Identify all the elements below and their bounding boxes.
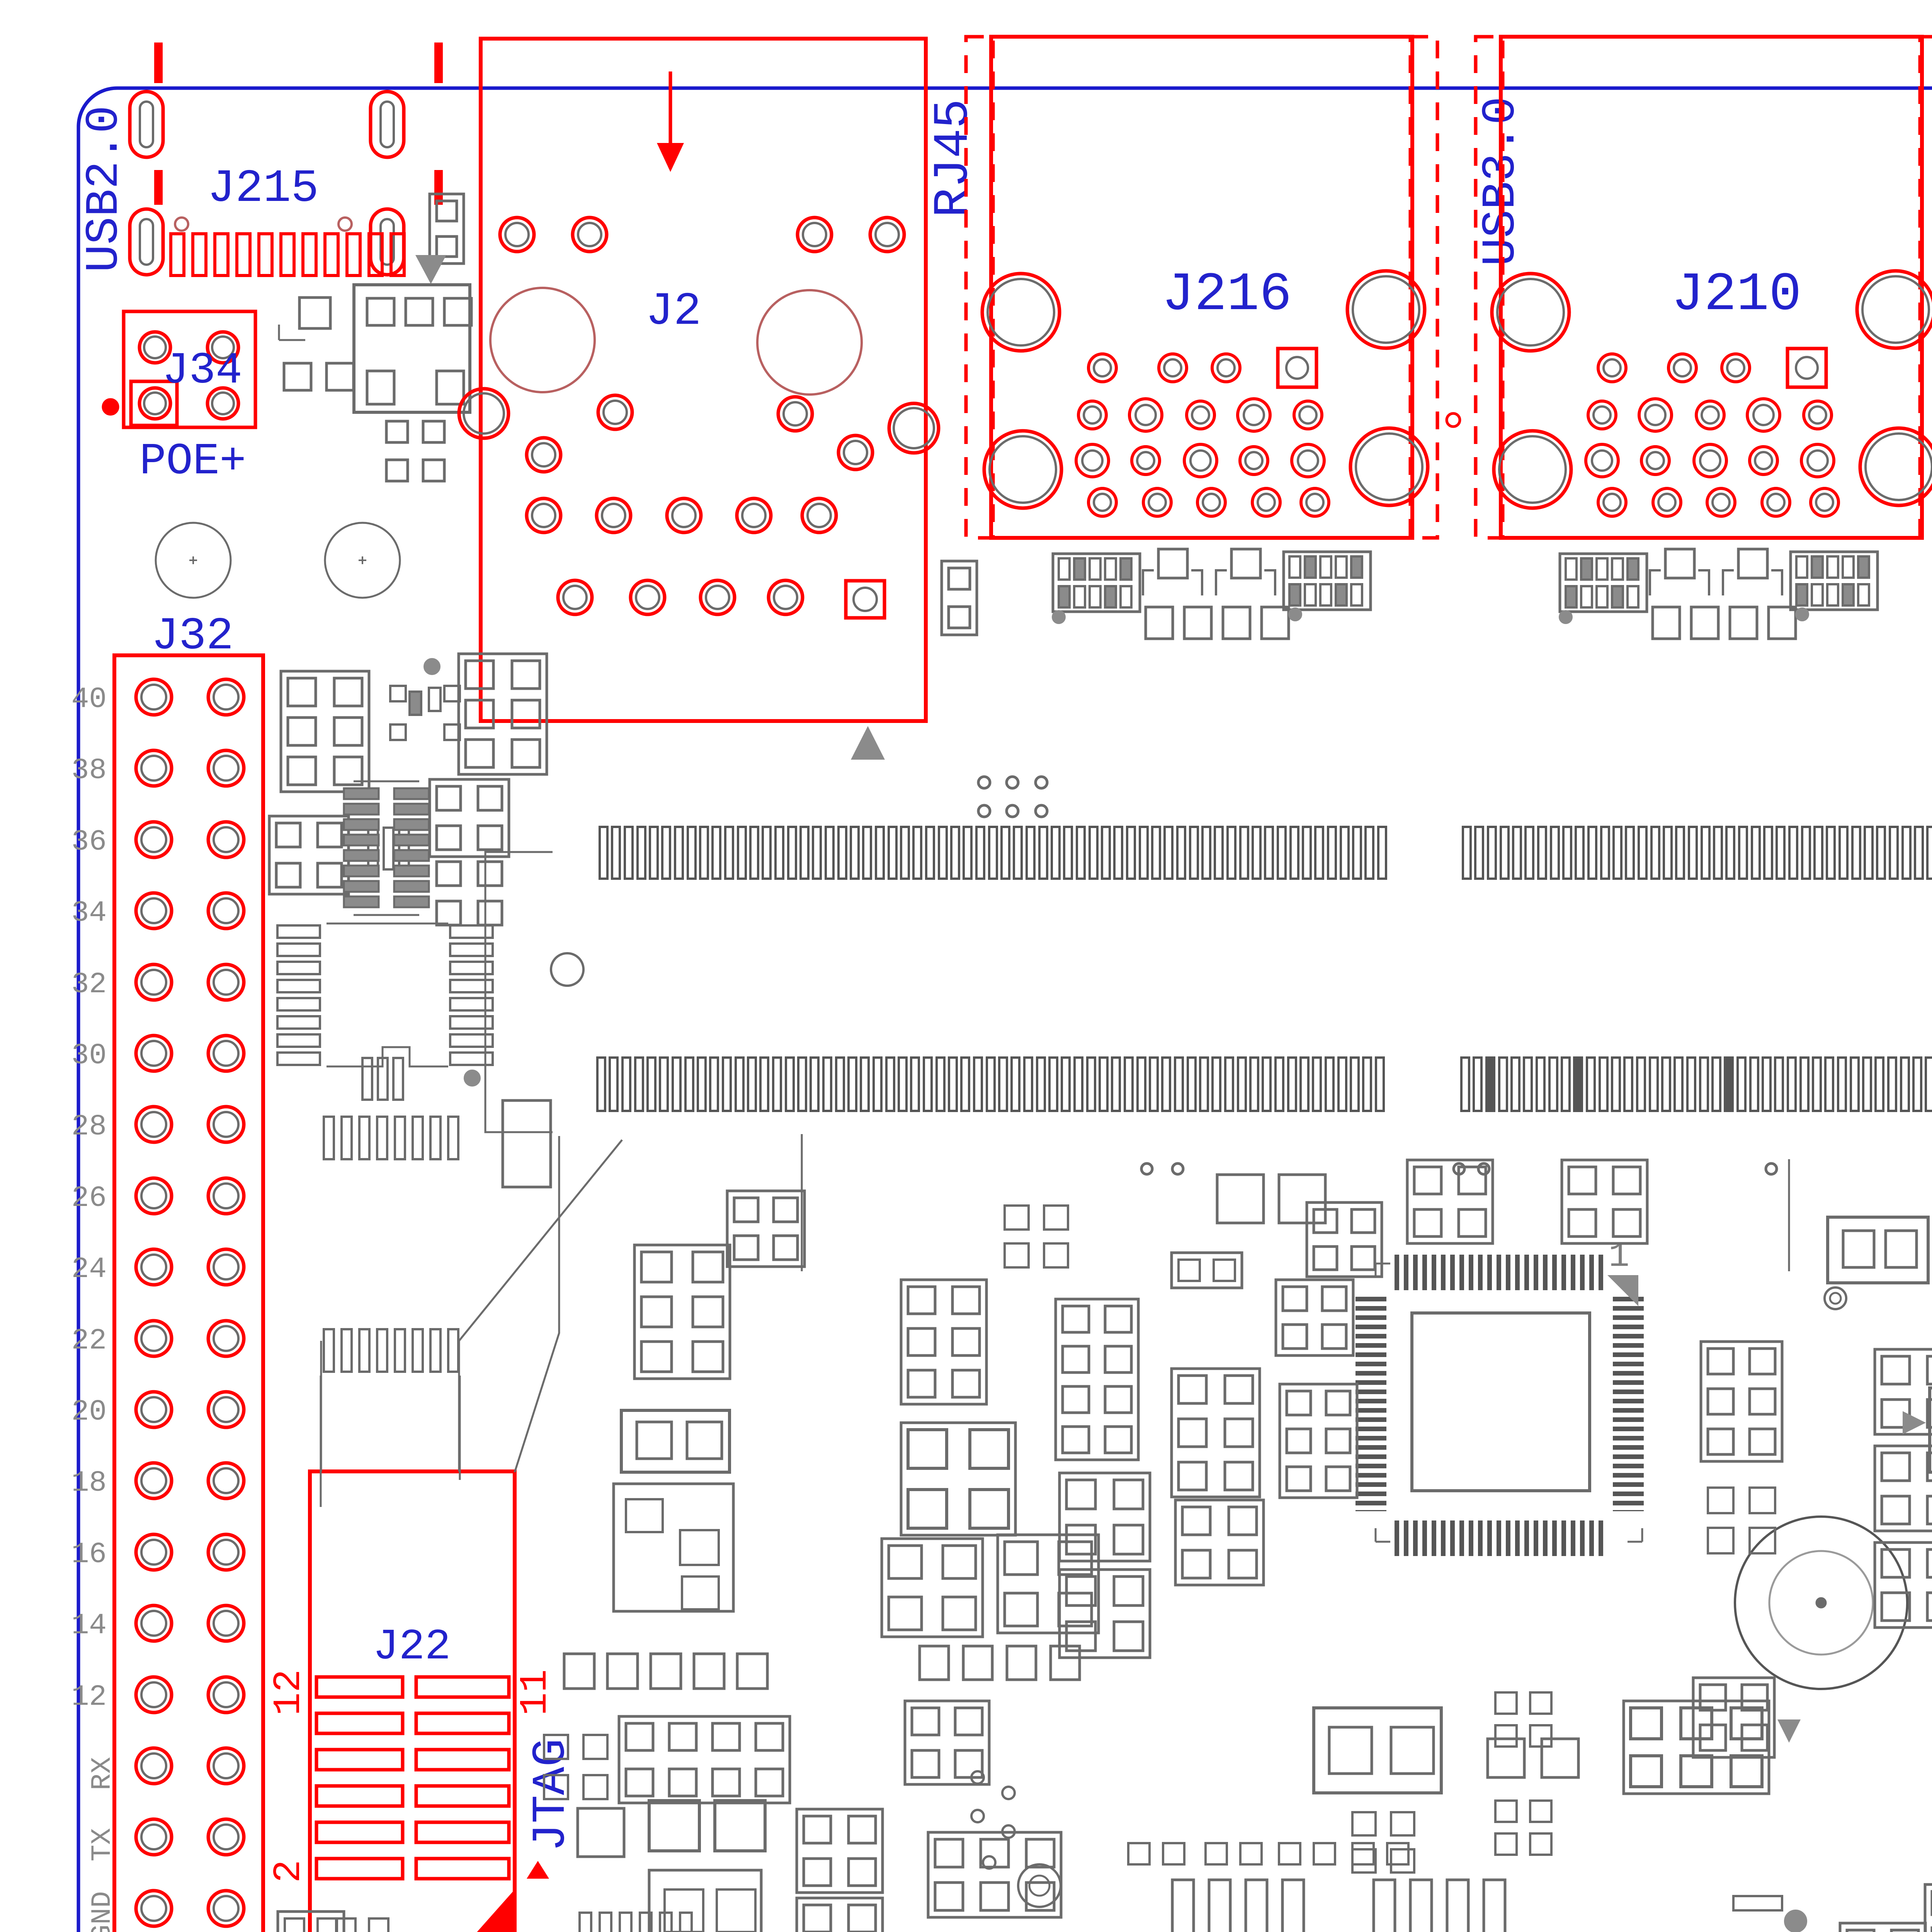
svg-text:40: 40	[71, 683, 107, 716]
svg-text:12: 12	[267, 1669, 311, 1716]
svg-text:J2: J2	[646, 286, 701, 338]
svg-text:USB2.0: USB2.0	[78, 105, 131, 272]
svg-text:GND: GND	[87, 1891, 118, 1932]
svg-text:36: 36	[71, 825, 107, 859]
svg-text:18: 18	[71, 1466, 107, 1500]
svg-text:TX: TX	[87, 1828, 118, 1861]
svg-text:20: 20	[71, 1395, 107, 1429]
svg-text:J22: J22	[373, 1622, 451, 1672]
svg-text:2: 2	[267, 1860, 311, 1883]
svg-text:24: 24	[71, 1253, 107, 1286]
svg-text:RJ45: RJ45	[926, 99, 982, 218]
svg-text:16: 16	[71, 1538, 107, 1571]
svg-text:POE+: POE+	[139, 436, 246, 487]
svg-text:30: 30	[71, 1039, 107, 1072]
svg-text:28: 28	[71, 1110, 107, 1143]
svg-text:14: 14	[71, 1609, 107, 1642]
svg-text:34: 34	[71, 896, 107, 930]
svg-text:38: 38	[71, 754, 107, 787]
svg-text:J34: J34	[162, 345, 242, 396]
svg-text:26: 26	[71, 1182, 107, 1215]
svg-text:J215: J215	[207, 163, 319, 215]
svg-text:JTAG: JTAG	[524, 1738, 578, 1852]
svg-text:J210: J210	[1672, 264, 1801, 326]
svg-text:11: 11	[514, 1669, 558, 1716]
svg-text:22: 22	[71, 1324, 107, 1357]
svg-text:32: 32	[71, 968, 107, 1001]
svg-text:J216: J216	[1162, 264, 1292, 326]
svg-text:12: 12	[71, 1680, 107, 1714]
svg-text:RX: RX	[87, 1757, 118, 1790]
